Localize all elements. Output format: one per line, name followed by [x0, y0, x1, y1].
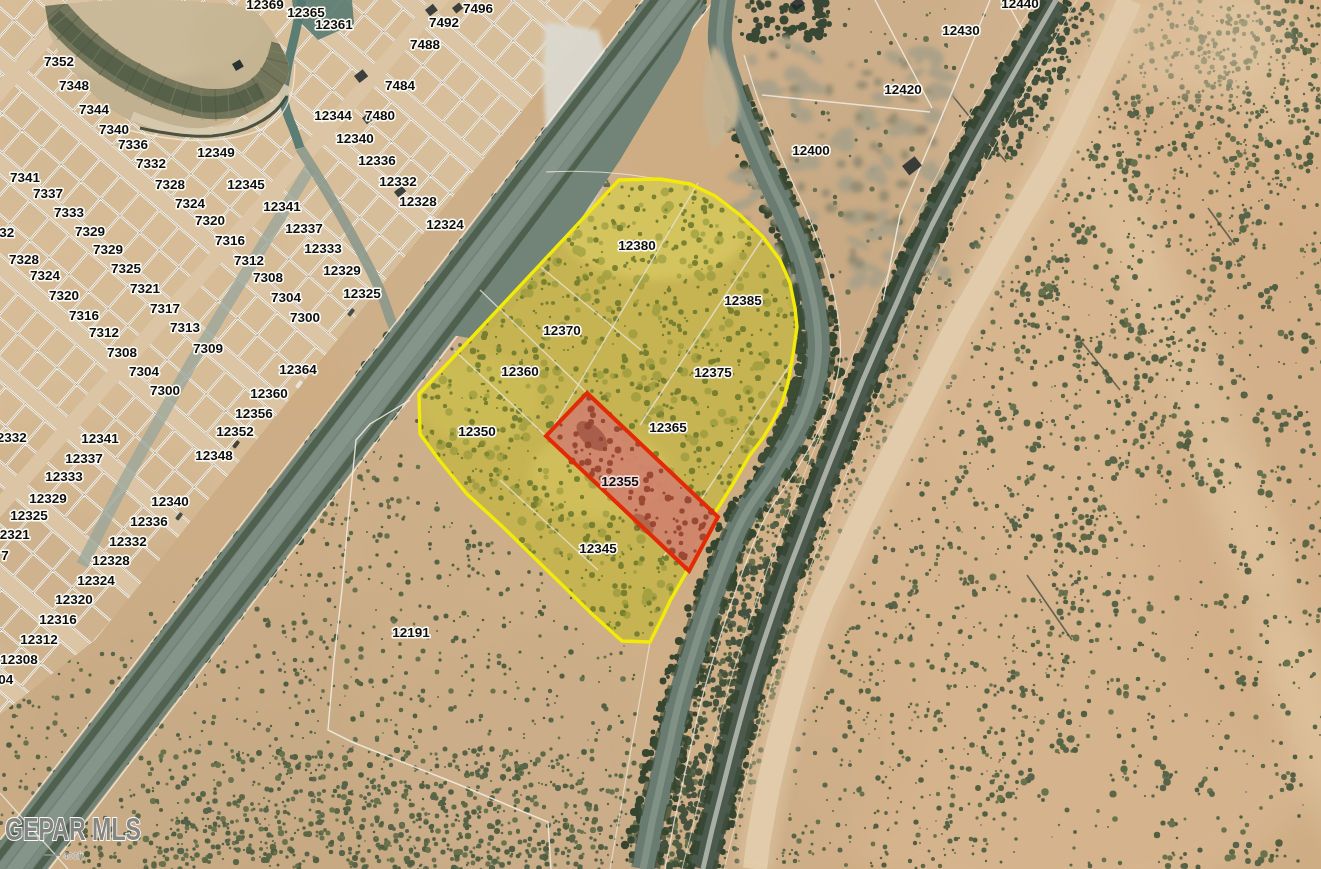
svg-text:12329: 12329	[323, 263, 361, 278]
svg-text:12350: 12350	[458, 424, 496, 439]
svg-text:7317: 7317	[150, 301, 180, 316]
svg-text:12345: 12345	[579, 541, 617, 556]
svg-text:12430: 12430	[942, 23, 980, 38]
svg-text:12320: 12320	[55, 592, 93, 607]
svg-text:12345: 12345	[227, 177, 265, 192]
svg-text:12400: 12400	[792, 143, 830, 158]
svg-text:7484: 7484	[385, 78, 416, 93]
svg-text:7324: 7324	[175, 196, 206, 211]
svg-text:12348: 12348	[195, 448, 233, 463]
svg-text:12336: 12336	[130, 514, 168, 529]
svg-text:12191: 12191	[392, 625, 430, 640]
svg-text:12341: 12341	[263, 199, 301, 214]
svg-text:7316: 7316	[215, 233, 246, 248]
svg-text:12328: 12328	[399, 194, 437, 209]
svg-text:7336: 7336	[118, 137, 149, 152]
svg-text:12325: 12325	[343, 286, 381, 301]
svg-text:7341: 7341	[10, 170, 41, 185]
svg-text:7340: 7340	[99, 122, 129, 137]
svg-text:12316: 12316	[39, 612, 77, 627]
svg-text:7344: 7344	[79, 102, 110, 117]
svg-text:12328: 12328	[92, 553, 130, 568]
svg-text:12361: 12361	[315, 17, 353, 32]
svg-text:304: 304	[0, 672, 14, 687]
svg-text:7492: 7492	[429, 15, 459, 30]
svg-text:12332: 12332	[379, 174, 417, 189]
svg-text:332: 332	[0, 225, 14, 240]
svg-text:12370: 12370	[543, 323, 581, 338]
svg-text:7304: 7304	[271, 290, 302, 305]
svg-text:7312: 7312	[89, 325, 119, 340]
svg-text:12364: 12364	[279, 362, 317, 377]
svg-text:7308: 7308	[253, 270, 284, 285]
svg-text:7333: 7333	[54, 205, 85, 220]
svg-text:7329: 7329	[75, 224, 105, 239]
svg-text:7312: 7312	[234, 253, 264, 268]
svg-text:7309: 7309	[193, 341, 223, 356]
svg-text:7337: 7337	[33, 186, 63, 201]
svg-text:12440: 12440	[1001, 0, 1039, 11]
svg-text:12356: 12356	[235, 406, 273, 421]
svg-text:12340: 12340	[151, 494, 189, 509]
svg-text:7300: 7300	[150, 383, 180, 398]
svg-text:12312: 12312	[20, 632, 58, 647]
svg-text:12333: 12333	[45, 469, 83, 484]
svg-text:12369: 12369	[246, 0, 284, 12]
svg-text:12341: 12341	[81, 431, 119, 446]
svg-text:7324: 7324	[30, 268, 61, 283]
svg-text:GEPAR MLS: GEPAR MLS	[5, 812, 141, 847]
svg-text:7320: 7320	[195, 213, 225, 228]
svg-text:7320: 7320	[49, 288, 79, 303]
svg-text:12344: 12344	[314, 108, 352, 123]
svg-text:12355: 12355	[601, 474, 639, 489]
svg-text:7480: 7480	[365, 108, 395, 123]
svg-text:7308: 7308	[107, 345, 138, 360]
svg-text:12321: 12321	[0, 527, 30, 542]
svg-text:12337: 12337	[285, 221, 323, 236]
svg-text:12349: 12349	[197, 145, 235, 160]
svg-text:12332: 12332	[109, 534, 147, 549]
svg-text:7: 7	[1, 548, 9, 563]
svg-text:7304: 7304	[129, 364, 160, 379]
svg-text:7325: 7325	[111, 261, 142, 276]
svg-text:12332: 12332	[0, 430, 27, 445]
svg-text:7313: 7313	[170, 320, 201, 335]
svg-text:12385: 12385	[724, 293, 762, 308]
svg-text:12365: 12365	[649, 420, 687, 435]
svg-text:7329: 7329	[93, 242, 123, 257]
svg-text:7328: 7328	[155, 177, 186, 192]
svg-text:12360: 12360	[501, 364, 539, 379]
svg-text:7496: 7496	[463, 1, 494, 16]
svg-text:12380: 12380	[618, 238, 656, 253]
svg-text:12360: 12360	[250, 386, 288, 401]
svg-text:7300: 7300	[290, 310, 320, 325]
svg-text:12325: 12325	[10, 508, 48, 523]
svg-text:7332: 7332	[136, 156, 166, 171]
svg-text:400ft: 400ft	[63, 851, 84, 861]
svg-text:12420: 12420	[884, 82, 922, 97]
svg-text:12352: 12352	[216, 424, 254, 439]
svg-text:7328: 7328	[9, 252, 40, 267]
svg-text:12329: 12329	[29, 491, 67, 506]
svg-text:7321: 7321	[130, 281, 161, 296]
svg-text:12340: 12340	[336, 131, 374, 146]
svg-text:7488: 7488	[410, 37, 441, 52]
svg-text:12336: 12336	[358, 153, 396, 168]
svg-text:12333: 12333	[304, 241, 342, 256]
svg-text:12337: 12337	[65, 451, 103, 466]
svg-text:12375: 12375	[694, 365, 732, 380]
svg-text:12308: 12308	[0, 652, 38, 667]
svg-text:7348: 7348	[59, 78, 90, 93]
svg-text:12324: 12324	[77, 573, 115, 588]
svg-text:7352: 7352	[44, 54, 74, 69]
svg-text:7316: 7316	[69, 308, 100, 323]
svg-text:12324: 12324	[426, 217, 464, 232]
